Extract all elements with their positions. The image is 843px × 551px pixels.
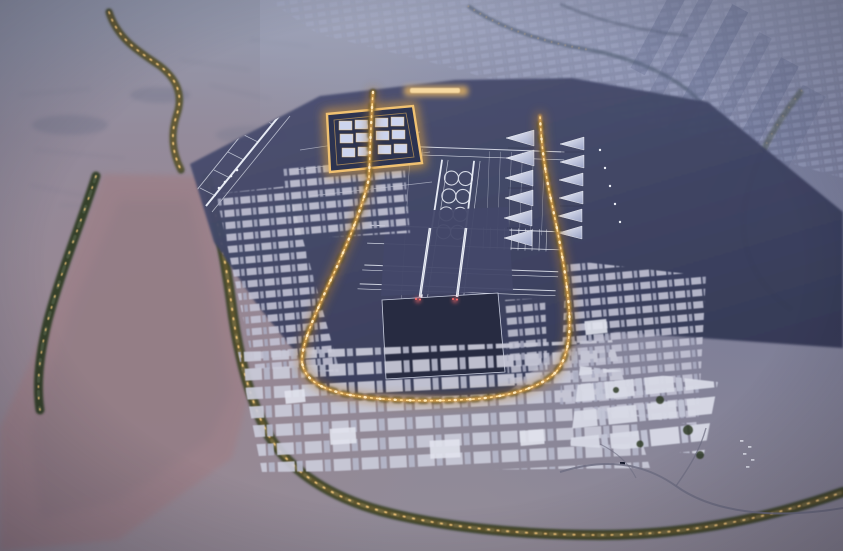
aerial-render-image bbox=[0, 0, 843, 551]
vignette bbox=[0, 0, 843, 551]
